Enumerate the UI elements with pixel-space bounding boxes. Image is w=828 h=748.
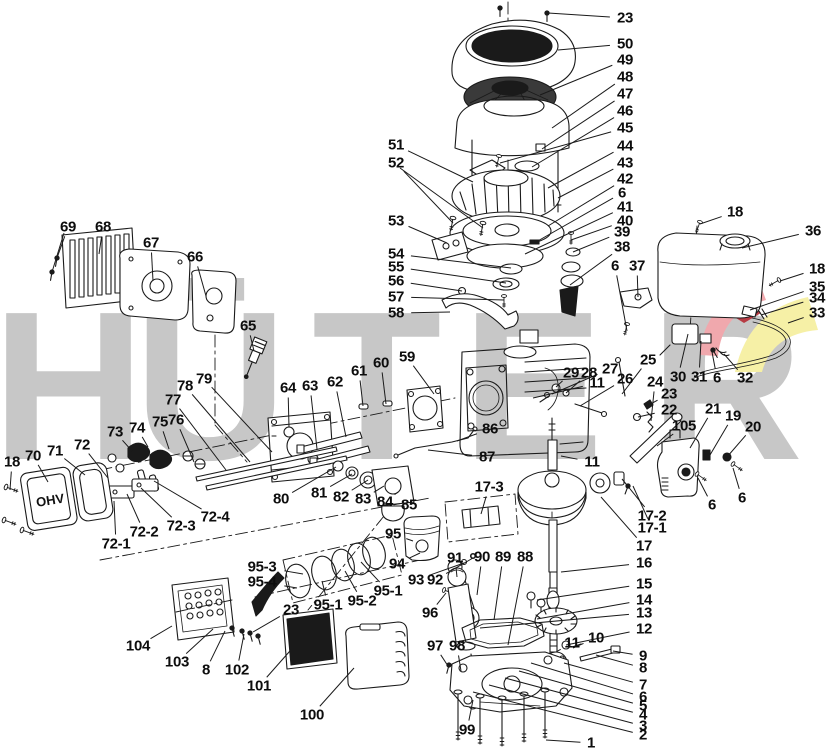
leader-line [617, 275, 627, 331]
part-label-11: 11 [584, 454, 599, 471]
leader-line [712, 352, 715, 369]
exploded-parts-diagram: HÜTER [0, 0, 828, 748]
part-label-72-1: 72-1 [102, 536, 131, 553]
part-label-67: 67 [143, 235, 159, 252]
leader-line [613, 651, 633, 654]
leader-line [494, 566, 502, 620]
part-label-17: 17 [636, 538, 652, 555]
leader-line [250, 335, 254, 351]
leader-line [411, 297, 504, 300]
leader-line [180, 409, 226, 470]
leader-line [542, 101, 615, 149]
part-label-6: 6 [708, 497, 716, 514]
part-label-103: 103 [165, 654, 189, 671]
part-label-71: 71 [47, 443, 63, 460]
part-label-58: 58 [388, 305, 404, 322]
part-label-94: 94 [389, 556, 405, 573]
leader-line [163, 431, 169, 449]
part-label-95-2: 95-2 [348, 593, 377, 610]
part-label-102: 102 [225, 662, 249, 679]
part-label-104: 104 [126, 638, 150, 655]
part-label-10: 10 [588, 630, 604, 647]
leader-line [680, 334, 688, 368]
leader-line [570, 254, 612, 285]
leader-line [320, 668, 354, 706]
part-label-12: 12 [636, 621, 652, 638]
leader-line [637, 275, 638, 297]
leader-line [361, 562, 380, 582]
leader-line [724, 354, 738, 370]
part-label-66: 66 [187, 249, 203, 266]
leader-line [212, 387, 272, 452]
part-label-18: 18 [727, 204, 743, 221]
part-label-51: 51 [388, 137, 404, 154]
leader-line [311, 395, 317, 449]
leader-line [411, 312, 450, 313]
part-label-30: 30 [670, 369, 686, 386]
leader-line [519, 671, 633, 703]
part-label-48: 48 [617, 69, 633, 86]
part-label-56: 56 [388, 273, 404, 290]
part-label-43: 43 [617, 155, 633, 172]
leader-line [700, 217, 722, 224]
leader-line [395, 492, 398, 495]
part-label-84: 84 [377, 494, 393, 511]
leader-line [657, 434, 673, 446]
leader-line [540, 65, 612, 95]
leader-line [210, 631, 225, 661]
leader-line [253, 616, 280, 632]
part-label-61: 61 [351, 363, 367, 380]
leader-line [428, 450, 472, 455]
part-label-19: 19 [725, 408, 741, 425]
leader-line [788, 318, 804, 323]
part-label-59: 59 [399, 349, 415, 366]
part-label-97: 97 [427, 638, 443, 655]
part-label-37: 37 [629, 258, 645, 275]
part-label-105: 105 [672, 418, 696, 435]
leader-line [142, 437, 148, 447]
part-label-47: 47 [617, 86, 633, 103]
part-label-8: 8 [202, 662, 210, 679]
part-label-18: 18 [4, 454, 20, 471]
leader-line [408, 151, 473, 182]
part-label-89: 89 [495, 549, 511, 566]
part-label-44: 44 [617, 138, 633, 155]
part-label-65: 65 [240, 318, 256, 335]
leader-line [571, 226, 612, 240]
part-label-17-1: 17-1 [638, 520, 667, 537]
part-label-32: 32 [737, 370, 753, 387]
part-label-77: 77 [165, 392, 181, 409]
part-label-92: 92 [427, 572, 443, 589]
leader-line [548, 13, 610, 17]
leader-line [548, 186, 614, 226]
leader-line [480, 614, 629, 628]
part-label-20: 20 [745, 419, 761, 436]
leader-line [477, 566, 481, 595]
part-label-95-1: 95-1 [374, 583, 403, 600]
leader-line [345, 571, 357, 592]
leader-line [192, 394, 250, 462]
leader-line [533, 386, 583, 398]
leader-line [360, 380, 363, 406]
part-label-98: 98 [449, 638, 465, 655]
part-label-99: 99 [459, 722, 475, 739]
leader-line [622, 479, 645, 507]
leader-line [459, 655, 461, 671]
part-label-80: 80 [273, 491, 289, 508]
leader-line [284, 586, 297, 588]
leader-line [457, 434, 477, 441]
part-label-49: 49 [617, 52, 633, 69]
leader-line [38, 465, 48, 482]
part-label-11: 11 [564, 635, 579, 652]
part-label-2: 2 [639, 727, 647, 744]
leader-line [122, 440, 133, 452]
leader-line [727, 435, 746, 457]
part-label-63: 63 [302, 378, 318, 395]
leader-line [267, 643, 297, 677]
part-label-23: 23 [283, 602, 299, 619]
part-label-29: 29 [563, 365, 579, 382]
leader-line [558, 169, 613, 198]
leader-line [127, 494, 140, 523]
part-label-57: 57 [388, 289, 404, 306]
part-label-25: 25 [640, 352, 656, 369]
leader-line [411, 256, 511, 268]
part-label-23: 23 [617, 10, 633, 27]
leader-line [409, 553, 420, 558]
leader-line [573, 237, 609, 252]
part-label-17-3: 17-3 [475, 479, 504, 496]
leader-line [489, 685, 633, 723]
part-label-72-4: 72-4 [201, 509, 230, 526]
leader-line [558, 45, 610, 50]
part-label-21: 21 [705, 401, 721, 418]
leader-line [10, 471, 11, 490]
leader-line [322, 581, 326, 596]
leader-line [400, 168, 483, 228]
leader-line [536, 198, 613, 242]
part-label-101: 101 [247, 678, 271, 695]
leader-line [601, 497, 637, 538]
leader-line [374, 486, 384, 492]
leader-line [561, 565, 629, 572]
part-label-8: 8 [639, 660, 647, 677]
part-label-33: 33 [809, 305, 825, 322]
leader-line [352, 480, 368, 490]
part-label-72: 72 [74, 437, 90, 454]
part-label-16: 16 [636, 555, 652, 572]
leader-line [409, 226, 447, 243]
part-label-100: 100 [300, 707, 324, 724]
leader-line [288, 397, 289, 427]
leader-line [151, 252, 153, 281]
part-label-95: 95 [385, 526, 401, 543]
part-label-72-2: 72-2 [130, 524, 159, 541]
leader-line [151, 626, 172, 639]
leader-line [564, 663, 633, 682]
part-label-64: 64 [280, 380, 296, 397]
leader-line [750, 292, 804, 310]
part-label-31: 31 [691, 369, 707, 386]
leader-line [239, 634, 244, 661]
part-label-38: 38 [614, 239, 630, 256]
leader-line [337, 391, 346, 437]
leader-line [500, 132, 611, 163]
leader-line [508, 566, 523, 645]
leader-line [525, 213, 613, 254]
part-label-95-1: 95-1 [314, 597, 343, 614]
part-label-1: 1 [587, 735, 595, 748]
leader-line [556, 649, 561, 652]
leader-line [456, 567, 457, 577]
leader-line [596, 655, 633, 665]
part-label-6: 6 [738, 490, 746, 507]
part-label-74: 74 [129, 420, 145, 437]
leader-line [742, 234, 799, 248]
part-label-86: 86 [482, 421, 498, 438]
leader-line [99, 236, 102, 254]
leader-line [638, 413, 655, 417]
part-label-75: 75 [152, 414, 168, 431]
leader-line [537, 586, 629, 600]
part-label-62: 62 [327, 374, 343, 391]
part-label-81: 81 [311, 485, 327, 502]
leader-line [413, 366, 434, 394]
leader-line [114, 501, 116, 535]
part-label-26: 26 [617, 371, 633, 388]
leader-line [561, 456, 577, 459]
part-label-6: 6 [713, 370, 721, 387]
leader-line [441, 655, 448, 666]
part-label-45: 45 [617, 120, 633, 137]
leader-line [546, 740, 580, 742]
leader-line [180, 429, 194, 462]
leader-line [700, 341, 701, 368]
leader-line [437, 593, 446, 605]
leader-line [404, 171, 453, 223]
part-label-13: 13 [636, 605, 652, 622]
leader-line [154, 481, 202, 509]
leader-line [780, 273, 804, 281]
part-label-11: 11 [589, 375, 604, 392]
leader-line [473, 692, 633, 732]
leader-line [537, 603, 629, 619]
part-label-53: 53 [388, 213, 404, 230]
leader-line [198, 266, 206, 296]
part-label-70: 70 [25, 448, 41, 465]
part-label-83: 83 [355, 491, 371, 508]
leader-line [89, 454, 108, 478]
part-label-90: 90 [474, 549, 490, 566]
leader-line [64, 458, 85, 475]
part-label-82: 82 [333, 489, 349, 506]
leader-line [382, 372, 386, 404]
leader-line [330, 474, 352, 487]
leader-line [698, 478, 708, 496]
leader-line [469, 700, 473, 721]
part-label-46: 46 [617, 103, 633, 120]
leader-line [733, 468, 739, 489]
leader-line [710, 425, 728, 455]
part-label-95-4: 95-4 [248, 574, 277, 591]
part-label-76: 76 [168, 412, 184, 429]
part-label-36: 36 [805, 223, 821, 240]
leader-line [548, 152, 614, 188]
leader-line [481, 496, 486, 514]
part-label-15: 15 [636, 576, 652, 593]
part-label-68: 68 [95, 219, 111, 236]
part-label-72-3: 72-3 [167, 518, 196, 535]
part-label-87: 87 [479, 449, 495, 466]
leader-line [284, 571, 303, 574]
leader-line [505, 678, 633, 712]
leader-line [406, 539, 413, 541]
leader-line [556, 381, 563, 387]
part-label-91: 91 [447, 550, 463, 567]
part-label-93: 93 [408, 572, 424, 589]
part-label-50: 50 [617, 36, 633, 53]
part-label-73: 73 [107, 424, 123, 441]
leader-line [651, 391, 654, 421]
part-label-6: 6 [611, 258, 619, 275]
leader-line [52, 233, 64, 272]
leader-line [411, 283, 462, 291]
leader-line [411, 269, 506, 283]
part-label-18: 18 [809, 261, 825, 278]
part-label-69: 69 [60, 219, 76, 236]
part-label-85: 85 [401, 497, 417, 514]
part-label-88: 88 [517, 549, 533, 566]
part-label-22: 22 [661, 402, 677, 419]
leader-line [57, 236, 65, 258]
part-label-96: 96 [422, 605, 438, 622]
part-label-79: 79 [196, 371, 212, 388]
leader-line [141, 488, 172, 517]
leader-line [186, 629, 213, 654]
part-label-23: 23 [661, 386, 677, 403]
part-label-60: 60 [373, 355, 389, 372]
part-label-52: 52 [388, 155, 404, 172]
